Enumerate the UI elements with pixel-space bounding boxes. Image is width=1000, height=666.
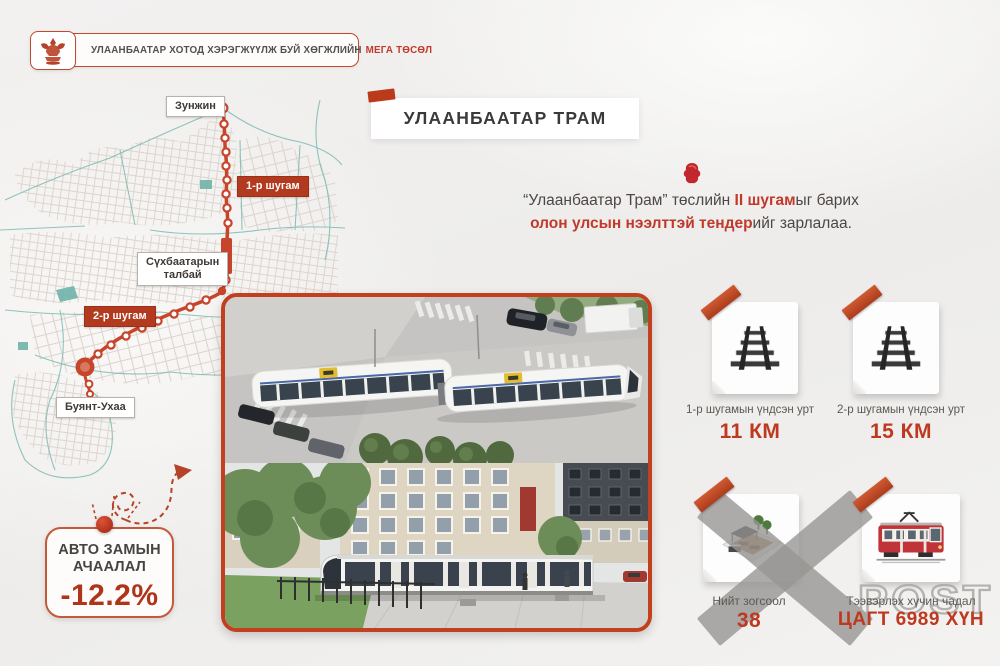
spark-dashes: [90, 494, 150, 520]
road-load-value: -12.2%: [47, 579, 172, 613]
stat-value-line2-length: 15 КМ: [826, 420, 976, 444]
stat-note-capacity: [862, 494, 960, 582]
title-card: УЛААНБААТАР ТРАМ: [371, 98, 639, 139]
tram-render-images: [221, 293, 652, 632]
road-load-label-1: АВТО ЗАМЫН: [47, 542, 172, 559]
stat-label-stops: Нийт зогсоол: [679, 594, 819, 608]
city-emblem-logo: [30, 31, 76, 70]
header-badge: УЛААНБААТАР ХОТОД ХЭРЭГЖҮҮЛЖ БУЙ ХӨГЖЛИЙ…: [44, 33, 359, 67]
header-badge-highlight: МЕГА ТӨСӨЛ: [366, 45, 433, 56]
red-pin-dot: [96, 516, 113, 533]
stat-label-line1-length: 1-р шугамын үндсэн урт: [675, 404, 825, 416]
railway-track-icon: [726, 319, 784, 377]
map-label-line2: 2-р шугам: [84, 306, 156, 327]
railway-track-icon: [867, 319, 925, 377]
road-load-label-2: АЧААЛАЛ: [47, 559, 172, 576]
page-title: УЛААНБААТАР ТРАМ: [404, 108, 607, 129]
stat-value-capacity: ЦАГТ 6989 ХҮН: [816, 609, 1000, 631]
emblem-icon: [37, 36, 69, 66]
map-label-zunjin: Зунжин: [166, 96, 225, 117]
announcement-text: “Улаанбаатар Трам” төслийн II шугамыг ба…: [505, 189, 877, 235]
stat-value-stops: 38: [679, 609, 819, 633]
render-aerial-intersection: [225, 297, 652, 463]
map-label-buyant: Буянт-Ухаа: [56, 397, 135, 418]
map-label-sukhbaatar: Сүхбаатарын талбай: [137, 252, 228, 286]
tram-icon: [872, 509, 950, 567]
road-load-card: АВТО ЗАМЫН АЧААЛАЛ -12.2%: [45, 527, 174, 618]
infographic-poster: УЛААНБААТАР ХОТОД ХЭРЭГЖҮҮЛЖ БУЙ ХӨГЖЛИЙ…: [0, 0, 1000, 666]
stat-label-line2-length: 2-р шугамын үндсэн урт: [826, 404, 976, 416]
stat-note-line1-length: [712, 302, 798, 394]
map-label-line1: 1-р шугам: [237, 176, 309, 197]
red-seal-icon: [682, 161, 702, 185]
stat-note-line2-length: [853, 302, 939, 394]
stat-label-capacity: Тээвэрлэх хүчин чадал: [826, 594, 996, 608]
render-street-level: [225, 463, 652, 628]
stat-value-line1-length: 11 КМ: [675, 420, 825, 444]
header-badge-text: УЛААНБААТАР ХОТОД ХЭРЭГЖҮҮЛЖ БУЙ ХӨГЖЛИЙ…: [91, 45, 362, 56]
